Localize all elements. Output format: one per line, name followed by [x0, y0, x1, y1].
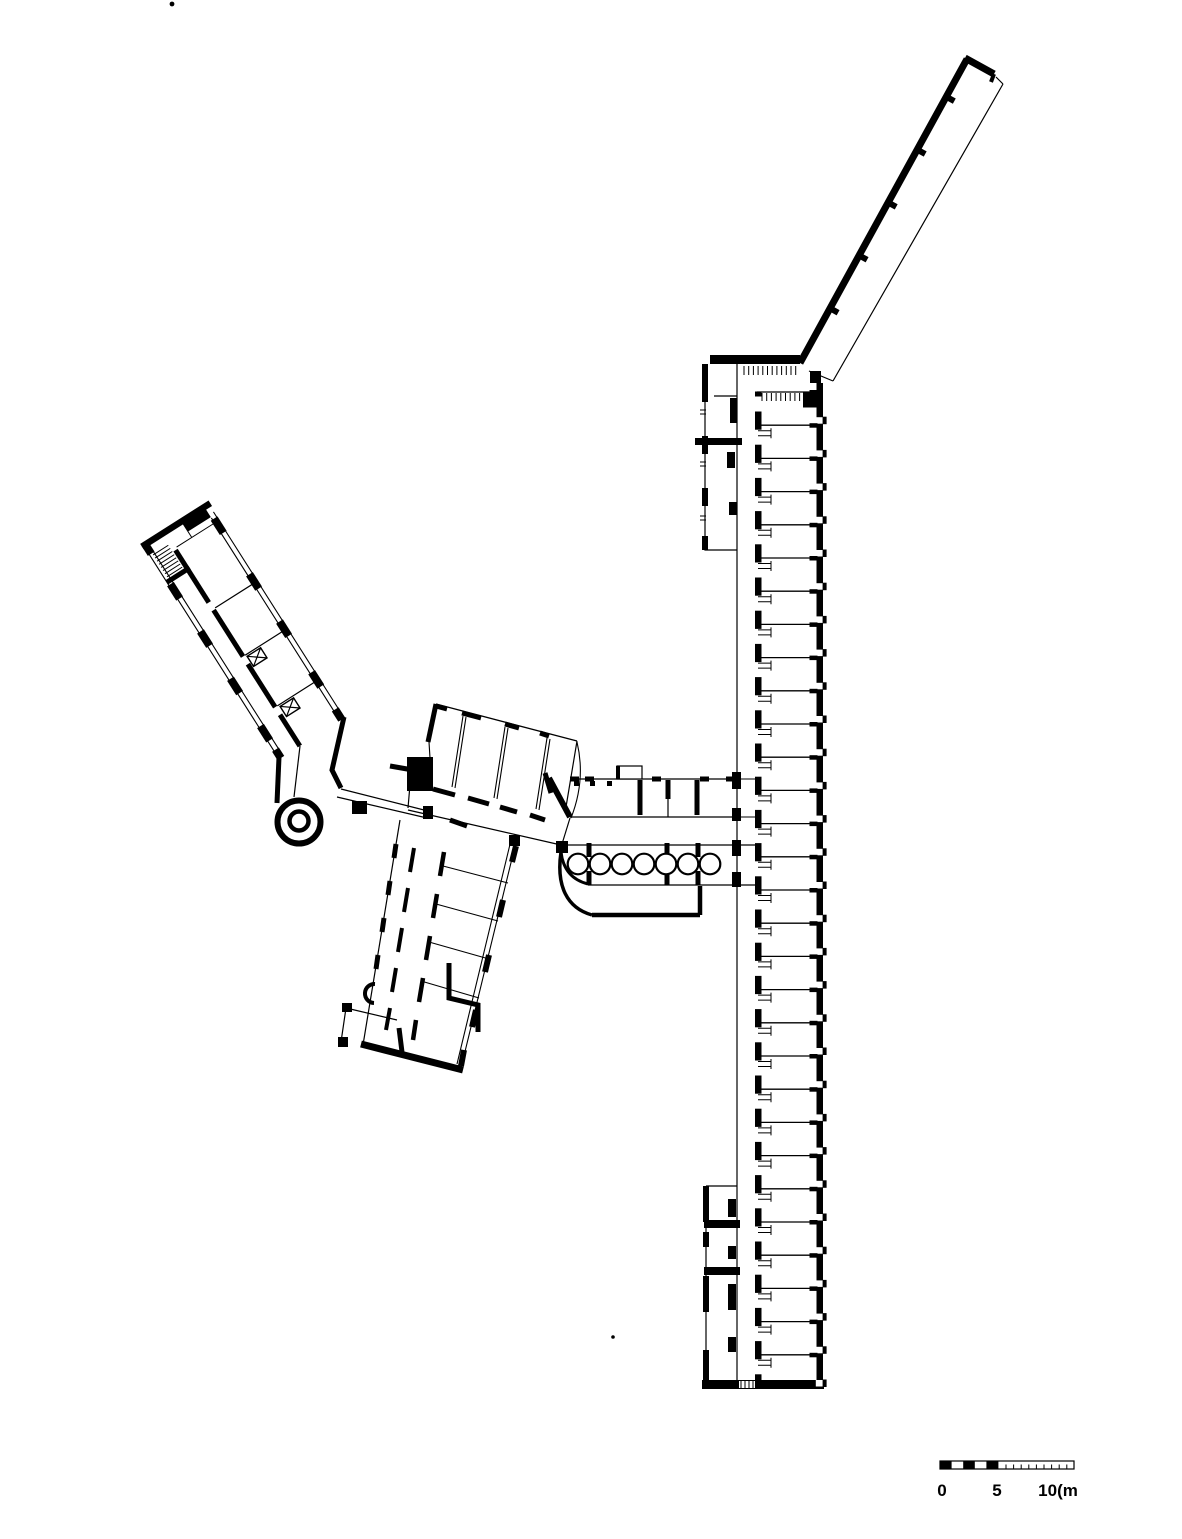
- window-gap: [816, 849, 823, 856]
- patient-room: [755, 390, 827, 425]
- semicircular-bay: [365, 984, 375, 1003]
- central-block: [338, 704, 580, 1070]
- pier-nub: [823, 1346, 827, 1354]
- window-gap: [816, 1181, 823, 1188]
- wall: [728, 1337, 736, 1352]
- wall-block: [732, 808, 741, 821]
- pier-nub: [823, 649, 827, 657]
- partition: [421, 866, 508, 998]
- pier-nub: [823, 1214, 827, 1222]
- scale-bar: 0 5 10(m: [937, 1461, 1078, 1500]
- window-gap: [816, 1015, 823, 1022]
- pier-nub: [823, 815, 827, 823]
- scale-segment: [940, 1461, 952, 1469]
- stair-hatch: [762, 393, 800, 401]
- pier-nub: [823, 882, 827, 890]
- west-wing-body: [141, 502, 347, 762]
- pier-nub: [823, 417, 827, 425]
- wall: [730, 398, 737, 423]
- wall: [399, 1028, 402, 1052]
- floor-plan: 0 5 10(m: [0, 0, 1182, 1539]
- patient-room: [755, 722, 827, 757]
- window-gap: [816, 948, 823, 955]
- patient-room: [755, 1320, 827, 1355]
- wall: [704, 1267, 740, 1275]
- pier-nub: [823, 716, 827, 724]
- wall: [562, 818, 570, 844]
- wall-block: [732, 872, 741, 887]
- patient-room: [755, 1087, 827, 1122]
- wall: [428, 704, 436, 742]
- window-wall: [209, 512, 344, 721]
- window-gap: [816, 1114, 823, 1121]
- window-gap: [816, 1280, 823, 1287]
- pier-nub: [823, 450, 827, 458]
- window-gap: [816, 517, 823, 524]
- column: [590, 854, 611, 875]
- pier-nub: [823, 583, 827, 591]
- end-wall: [965, 58, 994, 74]
- wedge-wall: [332, 717, 344, 788]
- shaft-x-icon: [280, 698, 300, 717]
- wall: [728, 1199, 736, 1217]
- terrace-edge: [809, 77, 1003, 381]
- stair-bump: [617, 766, 642, 779]
- window-gap: [816, 583, 823, 590]
- wall: [450, 820, 467, 826]
- column: [678, 854, 699, 875]
- window-gap: [816, 417, 823, 424]
- wall-block: [342, 1003, 352, 1012]
- pier-nub: [823, 1247, 827, 1255]
- window-gap: [816, 816, 823, 823]
- wall-stub: [917, 150, 925, 154]
- patient-room: [755, 1220, 827, 1255]
- patient-rooms: [755, 390, 827, 1388]
- column: [568, 854, 589, 875]
- patient-room: [755, 954, 827, 989]
- south-annex: [704, 1186, 740, 1388]
- patient-room: [755, 1187, 827, 1222]
- patient-room: [755, 556, 827, 591]
- wedge-wall: [277, 757, 279, 803]
- pier-nub: [823, 981, 827, 989]
- stair-tower-core: [290, 812, 309, 831]
- mullion: [590, 781, 595, 786]
- entry-stair-hatch: [744, 366, 796, 375]
- column: [656, 854, 677, 875]
- ink-speck: [170, 2, 175, 7]
- wall: [727, 452, 735, 468]
- pier-nub: [823, 1180, 827, 1188]
- north-annex: [695, 364, 742, 550]
- window-gap: [816, 650, 823, 657]
- patient-room: [755, 423, 827, 458]
- window-gap: [816, 1247, 823, 1254]
- window-gap: [816, 1380, 823, 1387]
- patient-room: [755, 523, 827, 558]
- patient-room: [755, 1054, 827, 1089]
- corridor-line: [294, 746, 300, 797]
- column: [700, 854, 721, 875]
- scale-label-5: 5: [992, 1481, 1001, 1500]
- window-gap: [816, 450, 823, 457]
- window-gap: [816, 782, 823, 789]
- patient-room: [755, 1253, 827, 1288]
- window-gap: [816, 1048, 823, 1055]
- window-gap: [816, 716, 823, 723]
- wall-stub: [830, 308, 838, 312]
- scale-label-0: 0: [937, 1481, 946, 1500]
- patient-room: [755, 988, 827, 1023]
- window-gap: [816, 484, 823, 491]
- patient-room: [755, 1286, 827, 1321]
- patient-room: [755, 656, 827, 691]
- junction-lines: [737, 779, 755, 885]
- scale-bar-outline: [940, 1461, 1074, 1469]
- wall-stub: [946, 97, 954, 101]
- pier-nub: [823, 1048, 827, 1056]
- patient-room: [755, 622, 827, 657]
- ink-speck: [611, 1335, 615, 1339]
- window-gap: [816, 683, 823, 690]
- patient-room: [755, 1021, 827, 1056]
- window-gap: [816, 1214, 823, 1221]
- terrace-wall: [592, 886, 700, 915]
- wall-block: [732, 772, 741, 789]
- pier-nub: [823, 1114, 827, 1122]
- patient-room: [755, 755, 827, 790]
- patient-room: [755, 855, 827, 890]
- patient-room: [755, 1154, 827, 1189]
- wall-block: [338, 1037, 348, 1047]
- pier-nub: [823, 1081, 827, 1089]
- partition: [215, 581, 319, 706]
- pier-nub: [823, 782, 827, 790]
- column: [634, 854, 655, 875]
- drawing-sheet: 0 5 10(m: [0, 0, 1182, 1539]
- bridge-corridor: [337, 789, 428, 818]
- north-wall: [710, 355, 800, 364]
- mullion: [574, 781, 579, 786]
- scale-label-10m: 10(m: [1038, 1481, 1078, 1500]
- wall: [429, 742, 430, 758]
- pier-nub: [823, 948, 827, 956]
- hinge-block: [810, 371, 821, 383]
- window-gap: [816, 1081, 823, 1088]
- door-wall-dashes: [433, 789, 545, 820]
- mullion: [607, 781, 612, 786]
- wall-stub: [888, 203, 896, 207]
- pier-nub: [823, 516, 827, 524]
- window-gap: [816, 1148, 823, 1155]
- pier-nub: [823, 1280, 827, 1288]
- wall-stub: [859, 255, 867, 259]
- wall-piers: [141, 503, 345, 760]
- window-gap: [816, 882, 823, 889]
- patient-room: [755, 921, 827, 956]
- spine-dashes: [386, 848, 414, 1030]
- end-wall-step: [991, 74, 994, 82]
- patient-room: [755, 822, 827, 857]
- wall: [729, 502, 737, 515]
- window-gap: [816, 915, 823, 922]
- window-gap: [816, 616, 823, 623]
- wall-block: [352, 801, 367, 814]
- pier-nub: [823, 1313, 827, 1321]
- pier-nub: [823, 616, 827, 624]
- terrace-wing: [800, 58, 1003, 381]
- end-wall: [142, 503, 210, 546]
- terrace-back-wall: [800, 59, 967, 363]
- window-gap: [816, 749, 823, 756]
- patient-room: [755, 888, 827, 923]
- patient-room: [755, 456, 827, 491]
- patient-room: [755, 490, 827, 525]
- patient-room: [755, 788, 827, 823]
- colonnade: [556, 841, 755, 915]
- pier-nub: [823, 550, 827, 558]
- wall: [728, 1284, 736, 1310]
- window-gap: [816, 550, 823, 557]
- scale-segment: [963, 1461, 975, 1469]
- patient-room: [755, 689, 827, 724]
- patient-room: [755, 589, 827, 624]
- pier-nub: [823, 915, 827, 923]
- column: [612, 854, 633, 875]
- pier-nub: [823, 1014, 827, 1022]
- west-wing: [141, 502, 433, 843]
- wall-block: [509, 835, 520, 846]
- end-wall: [549, 778, 570, 817]
- wall: [728, 1246, 736, 1259]
- wall-block: [732, 840, 741, 856]
- pier-nub: [823, 1147, 827, 1155]
- south-wall: [361, 1044, 463, 1070]
- facade-piers: [436, 706, 549, 736]
- corridor-wall: [173, 549, 302, 748]
- wall-block: [556, 841, 568, 853]
- pier-nub: [823, 749, 827, 757]
- pier-nub: [823, 682, 827, 690]
- wall-block: [423, 806, 433, 819]
- window-gap: [816, 1314, 823, 1321]
- patient-room: [755, 1120, 827, 1155]
- scale-segment: [986, 1461, 998, 1469]
- pier-nub: [823, 848, 827, 856]
- spine-dashes: [413, 852, 444, 1040]
- pier-nub: [823, 483, 827, 491]
- window-gap: [816, 1347, 823, 1354]
- window-gap: [816, 982, 823, 989]
- south-wall: [702, 1380, 824, 1389]
- link-wing: [549, 766, 736, 844]
- wall: [704, 1220, 740, 1228]
- wall: [695, 438, 742, 445]
- pier-nub: [823, 1380, 827, 1388]
